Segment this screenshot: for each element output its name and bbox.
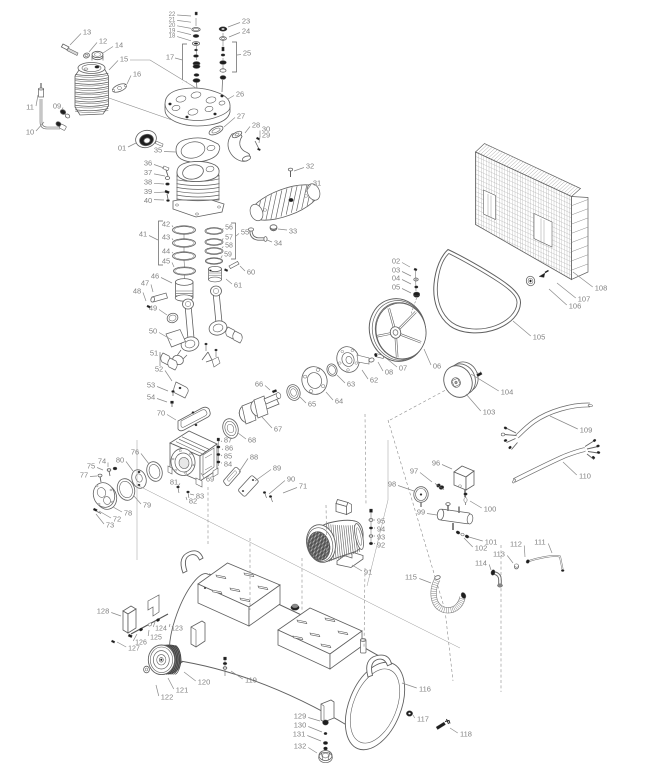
svg-text:11: 11 xyxy=(26,103,34,112)
svg-text:74: 74 xyxy=(98,457,106,466)
svg-text:04: 04 xyxy=(392,274,400,283)
svg-text:38: 38 xyxy=(144,177,152,186)
svg-text:132: 132 xyxy=(294,742,307,751)
svg-text:44: 44 xyxy=(162,247,170,256)
svg-text:124: 124 xyxy=(155,626,167,633)
svg-text:81: 81 xyxy=(170,478,178,487)
svg-text:117: 117 xyxy=(417,715,429,724)
svg-text:84: 84 xyxy=(224,460,232,469)
svg-text:54: 54 xyxy=(147,393,155,402)
svg-text:15: 15 xyxy=(120,55,128,64)
svg-text:16: 16 xyxy=(133,70,141,79)
svg-text:36: 36 xyxy=(144,159,152,168)
svg-text:59: 59 xyxy=(224,252,232,259)
svg-text:113: 113 xyxy=(493,550,505,559)
svg-text:45: 45 xyxy=(162,257,170,266)
svg-text:73: 73 xyxy=(106,521,114,530)
svg-text:60: 60 xyxy=(247,268,255,277)
svg-text:75: 75 xyxy=(87,462,95,471)
svg-text:103: 103 xyxy=(483,408,496,417)
svg-text:55: 55 xyxy=(241,228,249,237)
svg-text:120: 120 xyxy=(198,678,211,687)
svg-text:102: 102 xyxy=(475,544,488,553)
svg-text:116: 116 xyxy=(419,685,431,694)
svg-text:26: 26 xyxy=(236,90,244,99)
svg-text:128: 128 xyxy=(97,607,110,616)
svg-text:106: 106 xyxy=(569,302,582,311)
svg-text:71: 71 xyxy=(299,482,307,491)
svg-text:98: 98 xyxy=(388,480,396,489)
svg-text:57: 57 xyxy=(225,235,233,242)
svg-text:131: 131 xyxy=(293,730,306,739)
svg-text:06: 06 xyxy=(433,362,441,371)
svg-text:46: 46 xyxy=(151,272,159,281)
svg-text:23: 23 xyxy=(242,17,250,26)
svg-text:125: 125 xyxy=(150,635,162,642)
svg-text:82: 82 xyxy=(189,497,197,506)
svg-text:43: 43 xyxy=(162,233,170,242)
svg-text:62: 62 xyxy=(370,376,378,385)
svg-text:114: 114 xyxy=(475,559,487,568)
svg-text:119: 119 xyxy=(245,676,257,685)
svg-text:66: 66 xyxy=(255,380,263,389)
svg-text:48: 48 xyxy=(133,287,141,296)
svg-text:08: 08 xyxy=(385,368,393,377)
svg-text:56: 56 xyxy=(225,225,233,232)
svg-text:37: 37 xyxy=(144,168,152,177)
svg-text:39: 39 xyxy=(144,187,152,196)
svg-text:130: 130 xyxy=(294,721,307,730)
svg-text:25: 25 xyxy=(243,49,251,58)
svg-text:88: 88 xyxy=(250,453,258,462)
svg-text:129: 129 xyxy=(294,712,307,721)
svg-text:47: 47 xyxy=(141,279,149,288)
svg-text:51: 51 xyxy=(150,349,158,358)
svg-text:70: 70 xyxy=(157,409,165,418)
svg-text:52: 52 xyxy=(155,365,163,374)
svg-text:121: 121 xyxy=(176,686,189,695)
svg-text:12: 12 xyxy=(99,37,107,46)
svg-text:99: 99 xyxy=(417,508,425,517)
svg-text:17: 17 xyxy=(166,53,174,62)
svg-text:29: 29 xyxy=(262,131,270,140)
svg-text:77: 77 xyxy=(80,471,88,480)
svg-text:05: 05 xyxy=(392,283,400,292)
svg-text:97: 97 xyxy=(410,467,418,476)
svg-text:79: 79 xyxy=(143,501,151,510)
svg-text:109: 109 xyxy=(580,426,593,435)
svg-text:32: 32 xyxy=(306,162,314,171)
svg-text:115: 115 xyxy=(405,573,417,582)
svg-text:35: 35 xyxy=(154,146,162,155)
svg-text:118: 118 xyxy=(460,730,472,739)
svg-text:07: 07 xyxy=(399,364,407,373)
svg-text:18: 18 xyxy=(169,34,176,40)
svg-text:53: 53 xyxy=(147,381,155,390)
svg-text:100: 100 xyxy=(484,505,497,514)
svg-text:110: 110 xyxy=(579,472,591,481)
svg-text:127: 127 xyxy=(128,646,140,653)
svg-text:68: 68 xyxy=(248,436,256,445)
svg-text:02: 02 xyxy=(392,257,400,266)
svg-text:111: 111 xyxy=(534,538,545,547)
svg-text:40: 40 xyxy=(144,196,152,205)
svg-text:67: 67 xyxy=(274,425,282,434)
svg-text:90: 90 xyxy=(287,475,295,484)
svg-text:92: 92 xyxy=(377,541,385,550)
svg-text:123: 123 xyxy=(171,626,183,633)
svg-text:64: 64 xyxy=(335,397,343,406)
svg-text:69: 69 xyxy=(206,475,214,484)
svg-text:122: 122 xyxy=(161,693,174,702)
svg-text:96: 96 xyxy=(432,459,440,468)
svg-text:24: 24 xyxy=(242,27,250,36)
svg-text:28: 28 xyxy=(252,121,260,130)
svg-text:61: 61 xyxy=(234,281,242,290)
svg-text:105: 105 xyxy=(533,333,546,342)
svg-text:112: 112 xyxy=(510,540,522,549)
svg-text:50: 50 xyxy=(149,327,157,336)
svg-text:31: 31 xyxy=(313,179,321,188)
svg-text:01: 01 xyxy=(118,144,126,153)
svg-text:89: 89 xyxy=(273,464,281,473)
svg-text:34: 34 xyxy=(274,239,282,248)
svg-text:27: 27 xyxy=(237,112,245,121)
svg-text:33: 33 xyxy=(289,227,297,236)
svg-text:65: 65 xyxy=(308,400,316,409)
svg-text:76: 76 xyxy=(131,448,139,457)
svg-text:09: 09 xyxy=(53,102,61,111)
svg-text:63: 63 xyxy=(347,380,355,389)
svg-text:14: 14 xyxy=(115,41,123,50)
svg-text:13: 13 xyxy=(83,28,91,37)
svg-text:49: 49 xyxy=(149,304,157,313)
svg-text:78: 78 xyxy=(124,509,132,518)
svg-text:41: 41 xyxy=(139,230,147,239)
svg-text:108: 108 xyxy=(595,284,608,293)
svg-text:58: 58 xyxy=(225,243,233,250)
svg-text:42: 42 xyxy=(162,220,170,229)
svg-text:10: 10 xyxy=(26,128,34,137)
svg-text:80: 80 xyxy=(116,456,124,465)
svg-text:104: 104 xyxy=(501,388,514,397)
